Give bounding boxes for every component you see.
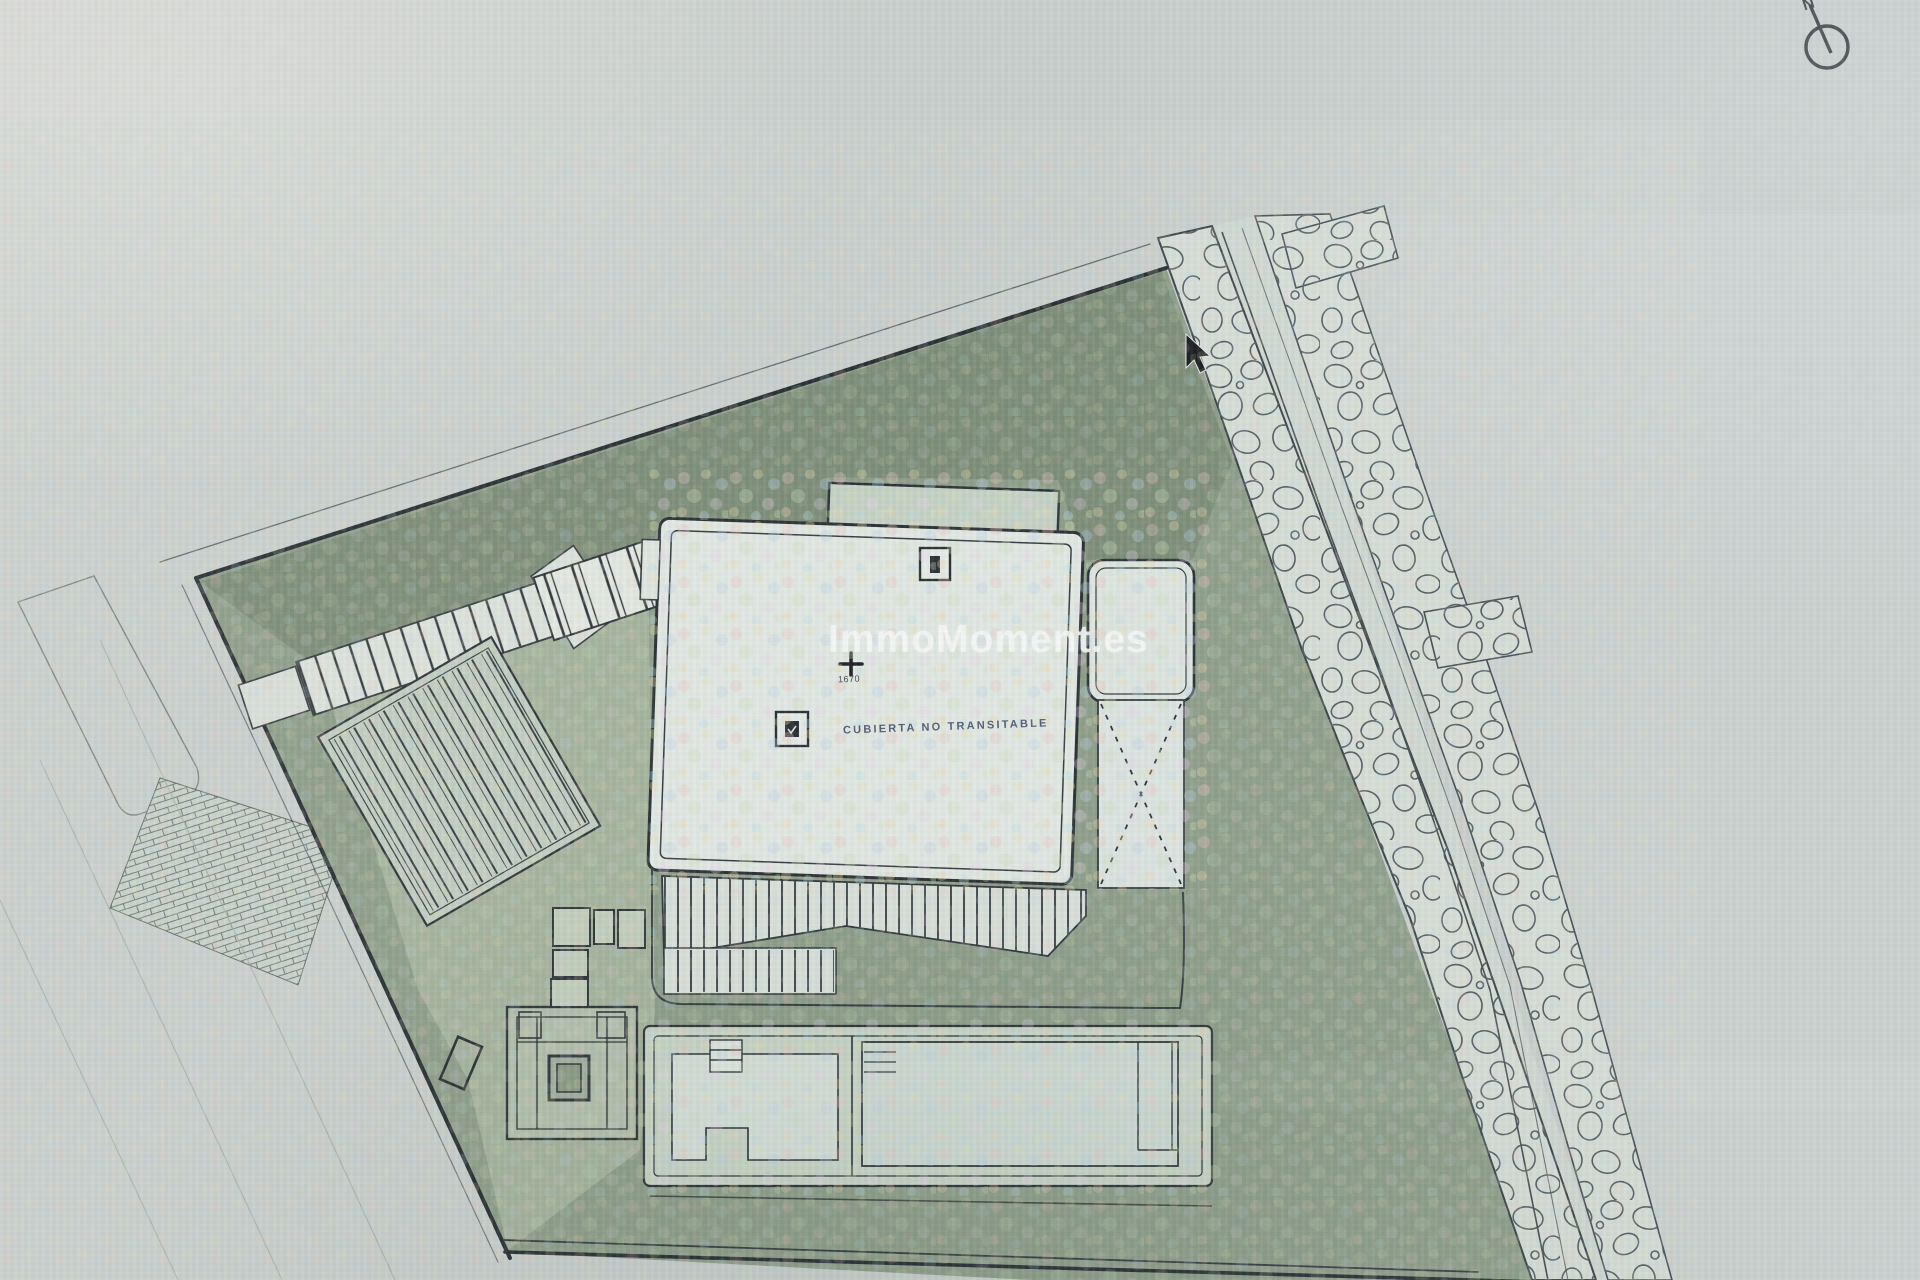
moire-confetti-roof <box>650 470 1210 890</box>
watermark: ImmoMoment.es <box>828 618 1258 662</box>
level-marker-value: 1670 <box>838 674 860 685</box>
moire-band <box>640 1060 1920 1110</box>
screen-photo: ImmoMoment.es CUBIERTA NO TRANSITABLE 16… <box>0 0 1920 1280</box>
